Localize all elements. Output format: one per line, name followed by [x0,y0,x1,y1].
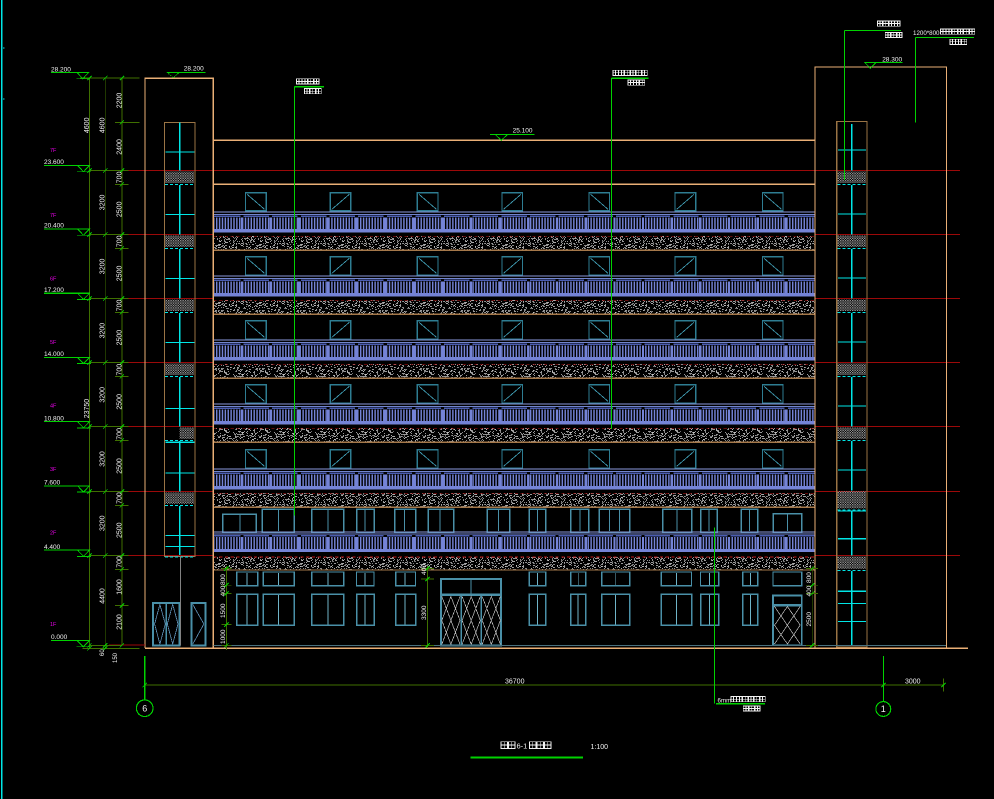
svg-text:2500: 2500 [116,394,123,410]
svg-text:700: 700 [116,492,123,504]
svg-text:6-1: 6-1 [517,742,528,751]
svg-text:3000: 3000 [905,679,921,686]
svg-text:1F: 1F [50,622,57,628]
svg-text:1000: 1000 [220,629,227,644]
svg-text:23750: 23750 [84,399,91,419]
svg-text:150: 150 [113,652,119,663]
svg-text:6: 6 [142,704,147,714]
svg-text:1: 1 [881,704,886,714]
svg-text:700: 700 [116,300,123,312]
svg-text:4600: 4600 [100,117,107,133]
svg-text:5F: 5F [50,340,57,346]
svg-text:2F: 2F [50,531,57,537]
svg-text:400: 400 [806,585,813,596]
svg-text:4400: 4400 [100,588,107,604]
svg-text:1500: 1500 [220,603,227,618]
svg-text:7F: 7F [50,148,57,154]
svg-text:4F: 4F [50,404,57,410]
svg-text:700: 700 [116,235,123,247]
svg-text:2400: 2400 [116,139,123,155]
svg-text:36700: 36700 [505,679,525,686]
svg-text:2200: 2200 [116,93,123,109]
svg-text:3200: 3200 [100,323,107,339]
svg-text:700: 700 [116,428,123,440]
svg-text:1600: 1600 [116,579,123,595]
svg-text:400: 400 [421,564,428,575]
svg-text:2500: 2500 [116,266,123,282]
svg-text:2100: 2100 [116,614,123,630]
svg-text:25.100: 25.100 [513,128,533,135]
svg-text:60: 60 [100,649,106,656]
svg-text:3200: 3200 [100,195,107,211]
svg-text:3200: 3200 [100,515,107,531]
svg-text:2500: 2500 [116,201,123,217]
svg-text:6mm: 6mm [718,697,732,704]
svg-text:700: 700 [116,556,123,568]
svg-text:2500: 2500 [116,330,123,346]
svg-text:1:100: 1:100 [591,744,609,751]
svg-text:3200: 3200 [100,451,107,467]
svg-text:3300: 3300 [421,605,428,620]
svg-text:28.200: 28.200 [184,66,204,73]
svg-text:6F: 6F [50,277,57,283]
svg-text:800: 800 [806,572,813,583]
svg-text:700: 700 [116,364,123,376]
svg-text:4600: 4600 [84,117,91,133]
svg-text:3F: 3F [50,467,57,473]
svg-text:3200: 3200 [100,387,107,403]
svg-text:2500: 2500 [806,612,813,627]
svg-text:2500: 2500 [116,522,123,538]
svg-text:3200: 3200 [100,259,107,275]
svg-text:2500: 2500 [116,458,123,474]
svg-text:800: 800 [220,574,227,585]
svg-text:400: 400 [220,585,227,596]
svg-text:700: 700 [116,171,123,183]
svg-text:1200*800: 1200*800 [913,30,940,37]
svg-text:7F: 7F [50,213,57,219]
